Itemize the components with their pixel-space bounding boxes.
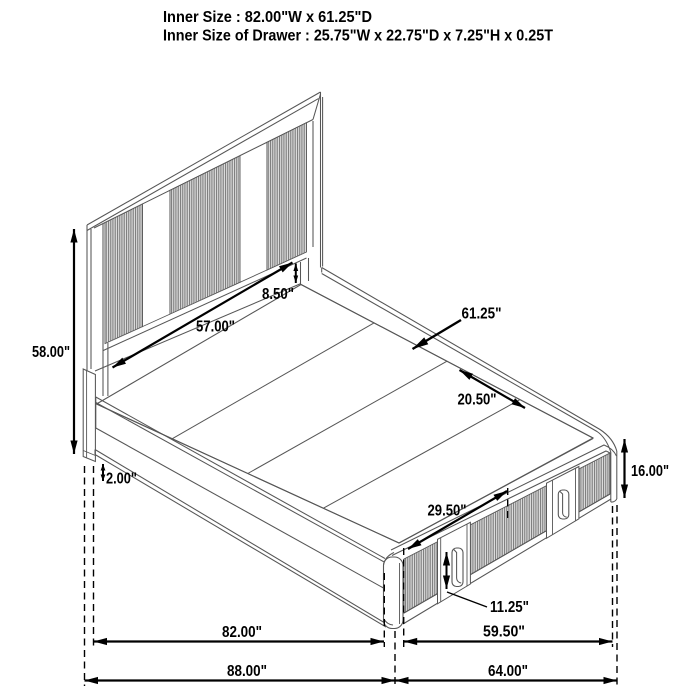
svg-text:Inner Size of Drawer : 25.75"W: Inner Size of Drawer : 25.75"W x 22.75"D… bbox=[163, 28, 553, 45]
svg-text:58.00": 58.00" bbox=[32, 344, 70, 361]
svg-text:57.00": 57.00" bbox=[196, 319, 235, 336]
svg-text:8.50": 8.50" bbox=[262, 286, 294, 303]
svg-text:16.00": 16.00" bbox=[631, 463, 669, 480]
svg-text:20.50": 20.50" bbox=[458, 392, 497, 409]
svg-text:Inner Size : 82.00"W x 61.25"D: Inner Size : 82.00"W x 61.25"D bbox=[163, 9, 372, 26]
svg-text:88.00": 88.00" bbox=[227, 663, 267, 680]
svg-text:59.50": 59.50" bbox=[483, 624, 525, 641]
svg-text:2.00": 2.00" bbox=[106, 471, 137, 488]
svg-text:64.00": 64.00" bbox=[488, 663, 528, 680]
svg-text:61.25": 61.25" bbox=[462, 306, 502, 323]
svg-text:82.00": 82.00" bbox=[222, 624, 262, 641]
svg-text:11.25": 11.25" bbox=[490, 599, 529, 616]
svg-text:29.50": 29.50" bbox=[428, 503, 467, 520]
